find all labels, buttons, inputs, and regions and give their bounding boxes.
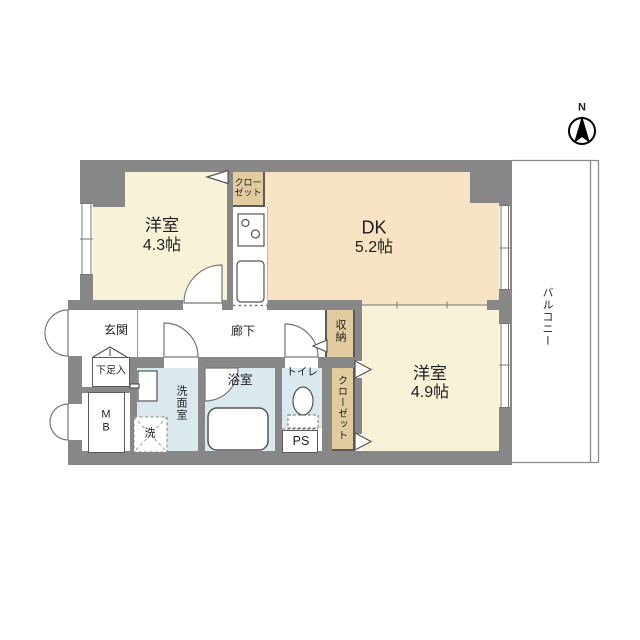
western-room-1-size: 4.3帖 [143,237,181,255]
doorway-washroom [164,357,198,368]
wall-closet-bedroom [355,305,362,451]
wall-bath-toilet [275,362,282,451]
entrance-label: 玄関 [104,324,128,338]
doorway-closet-bottom-gap [355,434,362,451]
window-dk [499,205,510,290]
dk-label: DK [361,218,386,239]
doorway-room1 [183,300,222,310]
pipe-space-label: PS [293,434,310,448]
wall-mid-a [80,300,183,310]
washroom-door-arc [164,323,198,357]
dk-size: 5.2帖 [355,239,393,257]
kitchen-counter-area [233,207,267,303]
meter-box-label: M B [101,408,110,433]
window-room1 [80,203,93,275]
wall-toilet-closet [322,357,332,451]
north-arrow-icon [569,116,595,144]
wall-mid-d [487,300,499,310]
wall-top [80,160,470,172]
western-room-2-size: 4.9帖 [411,384,449,402]
wall-mid-c [267,300,362,310]
north-label: N [578,102,586,115]
washing-machine-label: 洗 [145,428,156,441]
balcony-label: バルコニー [539,287,555,347]
mb-door-arc [50,404,68,440]
washroom-label: 洗面室 [173,385,189,421]
wall-genkan-right [130,357,137,451]
wall-bottom [68,451,512,465]
doorway-entrance [68,310,82,356]
opening-sliding-lower [362,305,487,310]
toilet-door-arc [285,324,318,357]
floor-plan: 洋室 4.3帖 DK 5.2帖 洋室 4.9帖 クロー ゼット 玄関 廊下 下足… [0,0,640,640]
closet-side-label: クローゼット [334,375,349,441]
toilet-label: トイレ [286,366,318,378]
window-room2 [499,323,510,408]
doorway-mb [68,404,82,440]
balcony-outline [512,160,599,463]
wall-room1-kitchen [227,172,233,303]
storage-unit-label: 収納 [332,319,348,343]
entrance-door-arc [45,310,68,356]
opening-kitchen [233,300,267,310]
western-room-1-label: 洋室 [145,216,179,236]
hallway-label: 廊下 [231,325,255,339]
western-room-2-label: 洋室 [413,364,447,384]
doorway-closet-top-gap [355,361,362,378]
shoe-cabinet-zigzag-icon [93,347,127,357]
shoe-cabinet-label: 下足入 [96,365,126,377]
closet-top-label: クロー ゼット [234,178,261,199]
wall-washroom-bath [198,368,205,451]
bathroom-label: 浴室 [227,373,252,387]
